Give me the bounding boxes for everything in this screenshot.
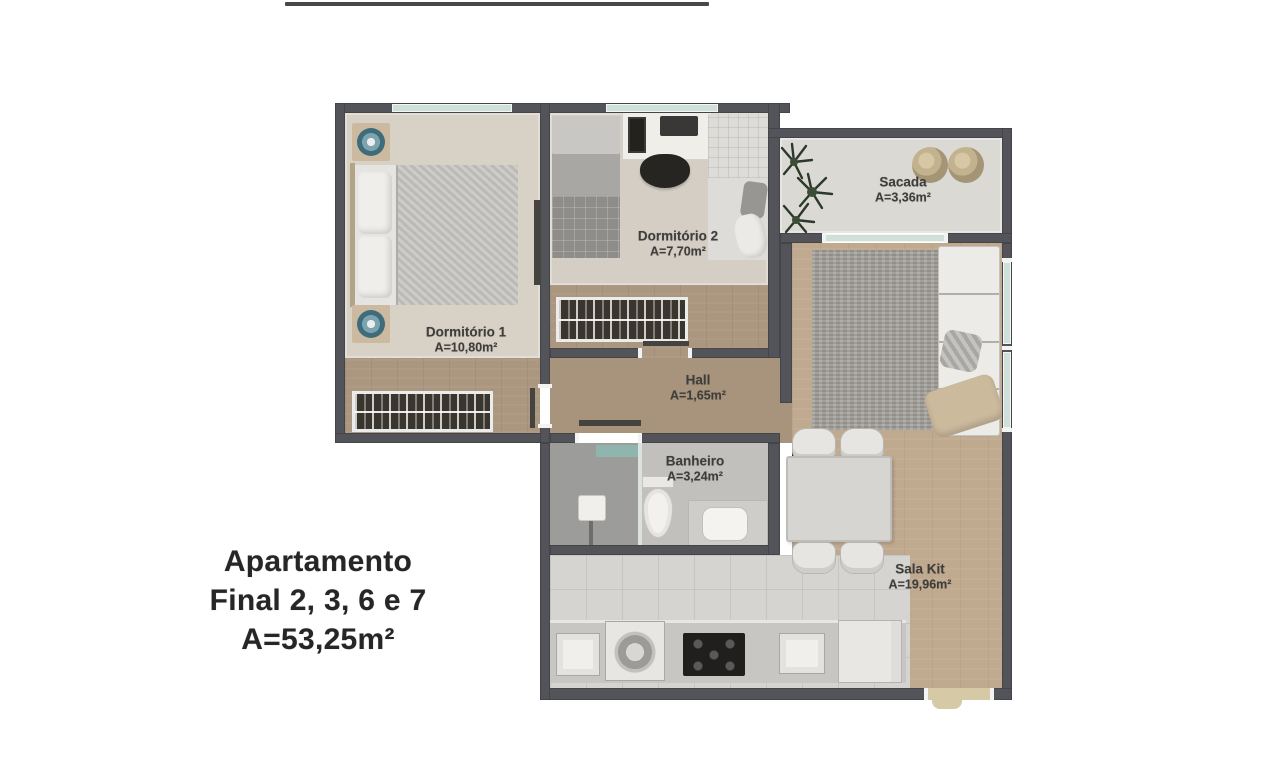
wall (992, 688, 1012, 700)
floor-plan-image: Dormitório 1 A=10,80m² Dormitório 2 A=7,… (0, 0, 1280, 761)
wall (540, 443, 550, 700)
wardrobe-dormitorio-2 (556, 297, 688, 342)
wall (550, 545, 780, 555)
washing-machine (605, 621, 665, 681)
shower-accent-tile (596, 445, 638, 457)
lamp-icon (357, 310, 385, 338)
kitchen-sink (779, 633, 825, 674)
bed-headboard (350, 163, 355, 307)
wall (690, 348, 780, 358)
dining-chair (840, 542, 884, 574)
monitor (660, 116, 698, 136)
window (1003, 352, 1011, 428)
sofa-seam (939, 293, 999, 295)
bed-pillow (358, 236, 392, 298)
quilt (708, 114, 768, 178)
plant-icon (778, 140, 840, 236)
wall (780, 243, 792, 403)
room-area: A=3,36m² (875, 191, 931, 206)
entry-door (928, 688, 992, 700)
window (606, 104, 718, 112)
room-area: A=3,24m² (666, 470, 725, 485)
wall (640, 433, 780, 443)
room-label-hall: Hall A=1,65m² (670, 372, 726, 404)
wall (780, 233, 825, 243)
floor-hall-opening (780, 403, 792, 443)
wall-cap (990, 688, 994, 700)
door-leaf-dormitorio-2 (643, 341, 689, 346)
wall-cap (822, 233, 826, 243)
pouf (948, 147, 984, 183)
wall (540, 103, 550, 386)
wall-cap (1002, 428, 1012, 432)
wall-cap (1002, 346, 1012, 350)
wall (335, 103, 345, 443)
apartment-title-line1: Apartamento (186, 542, 450, 581)
room-name: Hall (670, 372, 726, 389)
wall (550, 348, 642, 358)
wall (540, 688, 930, 700)
room-name: Sacada (875, 174, 931, 191)
wall-cap (575, 433, 579, 443)
wall-cap (924, 688, 928, 700)
dining-chair (792, 542, 836, 574)
wall (768, 443, 780, 555)
wall-cap (538, 384, 552, 388)
wall (1002, 128, 1012, 243)
wall-cap (1002, 258, 1012, 262)
room-label-dormitorio-1: Dormitório 1 A=10,80m² (426, 324, 506, 356)
entry-door-swing (932, 700, 962, 709)
room-label-dormitorio-2: Dormitório 2 A=7,70m² (638, 228, 718, 260)
wall-cap (638, 348, 642, 358)
room-name: Dormitório 2 (638, 228, 718, 245)
area-rug (812, 250, 940, 430)
plaid-blanket (552, 196, 620, 258)
wall-cap (944, 233, 948, 243)
room-name: Banheiro (666, 453, 725, 470)
room-label-banheiro: Banheiro A=3,24m² (666, 453, 725, 485)
wall-cap (688, 348, 692, 358)
room-area: A=7,70m² (638, 245, 718, 260)
shower-stand (578, 495, 606, 521)
vanity-sink (702, 507, 748, 541)
bed-blanket (396, 165, 518, 305)
apartment-title-line2: Final 2, 3, 6 e 7 (186, 581, 450, 620)
lamp-icon (357, 128, 385, 156)
wardrobe-dormitorio-1 (352, 391, 493, 432)
room-label-sala-kit: Sala Kit A=19,96m² (889, 561, 952, 593)
apartment-title-line3: A=53,25m² (186, 620, 450, 659)
shower-stand-pole (589, 521, 593, 545)
wall-cap (638, 433, 642, 443)
stove-cooktop (683, 633, 745, 676)
apartment-title: Apartamento Final 2, 3, 6 e 7 A=53,25m² (186, 542, 450, 659)
wall (945, 233, 1012, 243)
wall (550, 433, 577, 443)
room-area: A=19,96m² (889, 578, 952, 593)
shower-area (550, 443, 642, 545)
knit-pillow (938, 328, 983, 373)
wall (768, 128, 1012, 138)
desk-chair (640, 154, 690, 188)
wall (335, 433, 550, 443)
wall (540, 426, 550, 443)
bed-pillow (552, 116, 620, 154)
pc-tower (628, 117, 646, 153)
room-name: Dormitório 1 (426, 324, 506, 341)
wall-cap (538, 424, 552, 428)
balcony-sliding-door (825, 234, 945, 242)
wall (768, 103, 780, 358)
door-leaf-dormitorio-1 (530, 388, 535, 428)
window (392, 104, 512, 112)
shower-glass (638, 443, 642, 545)
kitchen-sink (556, 633, 600, 676)
room-area: A=1,65m² (670, 389, 726, 404)
room-label-sacada: Sacada A=3,36m² (875, 174, 931, 206)
door-leaf-banheiro (579, 420, 641, 426)
room-area: A=10,80m² (426, 341, 506, 356)
refrigerator (838, 620, 902, 683)
bed-pillow (358, 172, 392, 234)
window (1003, 262, 1011, 344)
room-name: Sala Kit (889, 561, 952, 578)
dining-table (786, 456, 892, 542)
